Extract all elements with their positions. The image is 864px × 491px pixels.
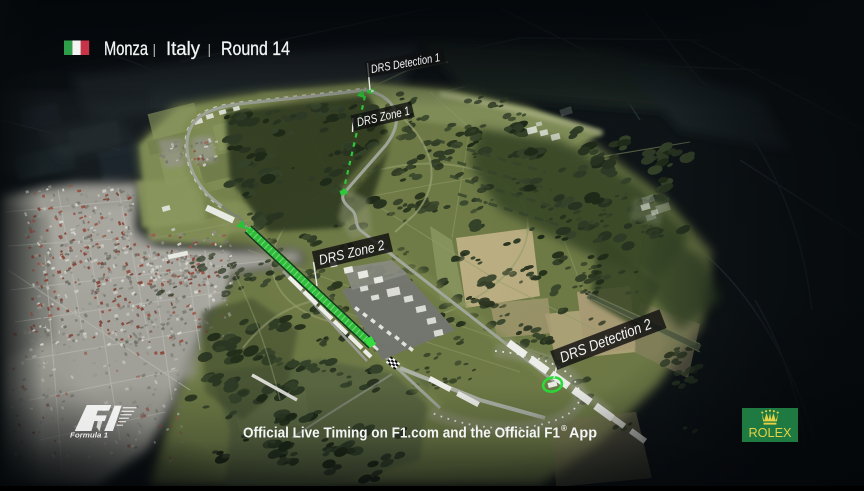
svg-text:Official Live Timing on F1.com: Official Live Timing on F1.com and the O… <box>243 425 560 442</box>
svg-text:ROLEX: ROLEX <box>749 426 793 440</box>
svg-text:®: ® <box>561 424 567 433</box>
svg-text:Formula 1: Formula 1 <box>70 430 108 439</box>
svg-text:Round 14: Round 14 <box>221 38 290 60</box>
svg-text:App: App <box>569 425 597 442</box>
svg-text:|: | <box>208 41 212 57</box>
svg-text:Italy: Italy <box>166 38 200 60</box>
svg-text:Monza: Monza <box>104 38 148 60</box>
svg-text:|: | <box>153 41 157 57</box>
